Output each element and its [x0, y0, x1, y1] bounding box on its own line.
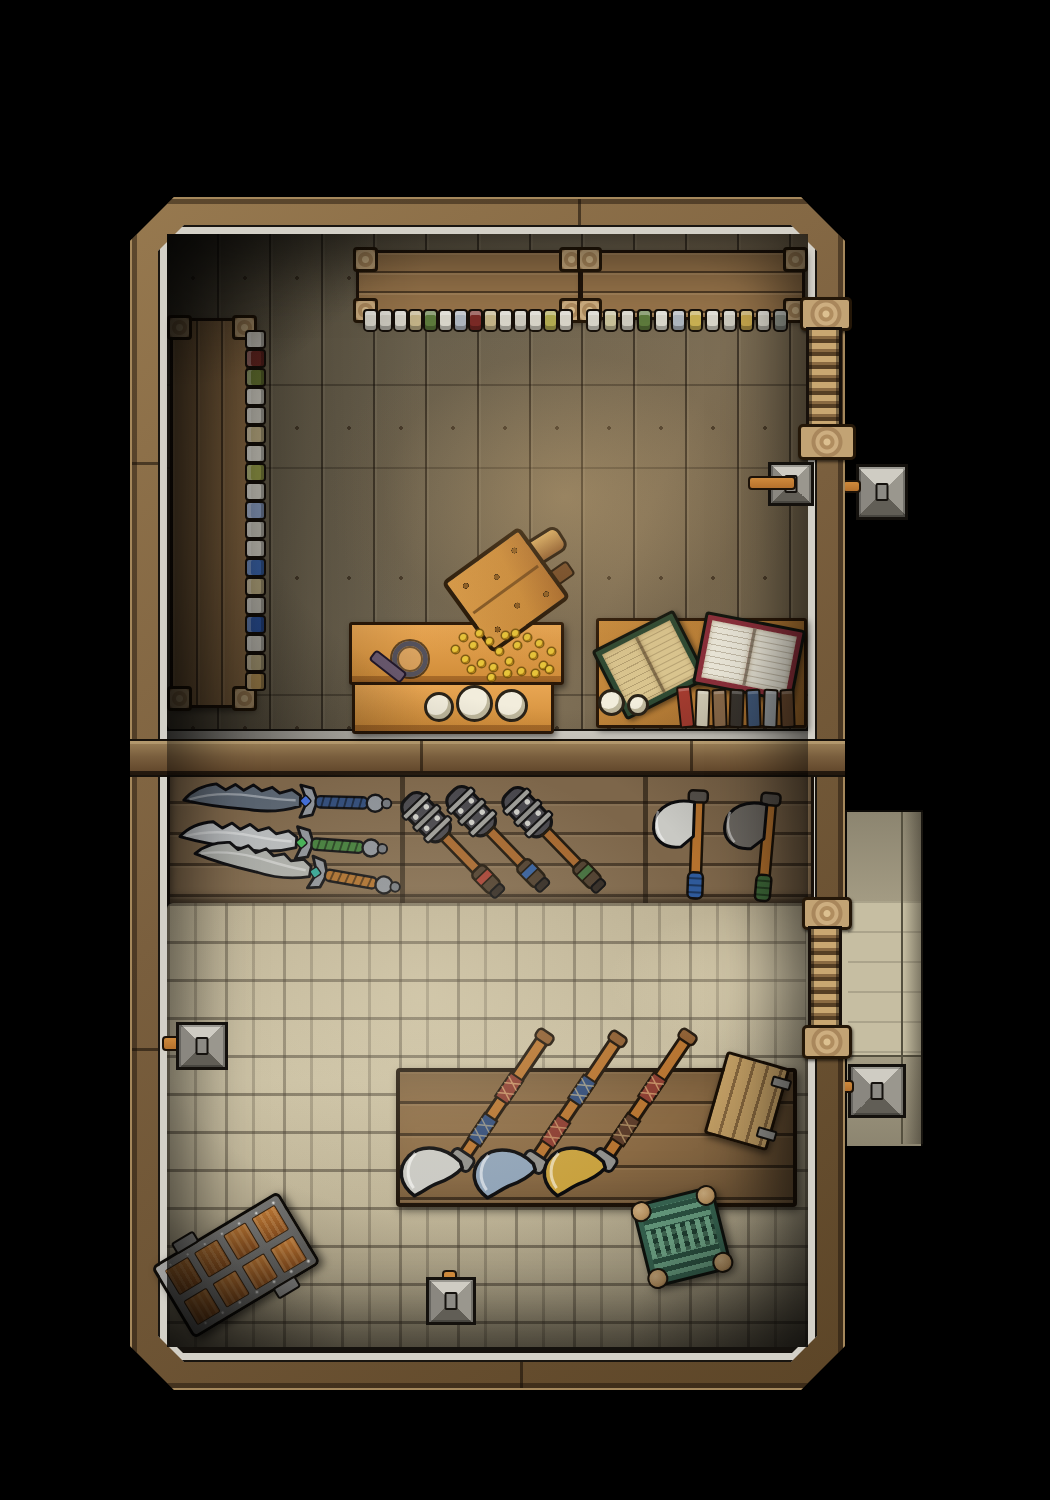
wall-seam [578, 199, 581, 226]
candle[interactable] [456, 685, 493, 722]
potion-bottle[interactable] [245, 615, 266, 634]
shelf-bracket-icon [577, 247, 602, 272]
potion-bottle[interactable] [528, 309, 543, 332]
potion-bottle[interactable] [393, 309, 408, 332]
potion-bottle[interactable] [513, 309, 528, 332]
closed-book[interactable] [762, 689, 778, 728]
potion-bottle[interactable] [363, 309, 378, 332]
potion-bottle[interactable] [245, 539, 266, 558]
potion-bottle[interactable] [245, 634, 266, 653]
potion-bottle[interactable] [705, 309, 720, 332]
gold-coin[interactable] [548, 648, 555, 655]
potion-bottle[interactable] [483, 309, 498, 332]
closed-book[interactable] [711, 689, 727, 728]
candle[interactable] [424, 692, 454, 722]
candle[interactable] [627, 694, 649, 716]
potion-bottle[interactable] [453, 309, 468, 332]
shelf-bracket-icon [783, 247, 808, 272]
candle-group [424, 686, 528, 722]
book-spine-row [678, 686, 795, 728]
potion-row-left [363, 309, 573, 332]
gold-coin[interactable] [506, 658, 513, 665]
gold-coin[interactable] [536, 640, 543, 647]
gold-coin[interactable] [468, 666, 475, 673]
potion-bottle[interactable] [773, 309, 788, 332]
potion-bottle[interactable] [620, 309, 635, 332]
gold-coin[interactable] [496, 648, 503, 655]
hand-axe-2[interactable] [713, 785, 797, 913]
potion-bottle[interactable] [245, 520, 266, 539]
side-potion-bench[interactable] [170, 318, 254, 708]
potion-bottle[interactable] [245, 444, 266, 463]
bench-bracket-icon [167, 315, 192, 340]
gold-coin[interactable] [452, 646, 459, 653]
potion-bottle[interactable] [245, 330, 266, 349]
potion-bottle[interactable] [245, 558, 266, 577]
closed-book[interactable] [728, 689, 744, 728]
battlemap-canvas [0, 0, 1050, 1500]
potion-bottle[interactable] [245, 349, 266, 368]
gold-coin[interactable] [530, 652, 537, 659]
potion-bottle[interactable] [722, 309, 737, 332]
potion-bottle[interactable] [408, 309, 423, 332]
potion-bottle[interactable] [586, 309, 601, 332]
wall-seam [132, 462, 159, 465]
hand-axe-1[interactable] [646, 785, 724, 910]
upper-door[interactable] [806, 327, 842, 430]
potion-column [245, 330, 266, 691]
potion-bottle[interactable] [245, 406, 266, 425]
closed-book[interactable] [694, 689, 710, 728]
potion-bottle[interactable] [245, 596, 266, 615]
closed-book[interactable] [779, 689, 795, 728]
potion-bottle[interactable] [468, 309, 483, 332]
potion-bottle[interactable] [245, 653, 266, 672]
potion-bottle[interactable] [245, 577, 266, 596]
potion-bottle[interactable] [245, 368, 266, 387]
potion-bottle[interactable] [756, 309, 771, 332]
left-wall-torch-icon[interactable] [176, 1022, 228, 1070]
candle[interactable] [495, 689, 528, 722]
potion-bottle[interactable] [245, 672, 266, 691]
door-post [800, 297, 852, 331]
gold-coin-pile [452, 630, 557, 676]
potion-bottle[interactable] [671, 309, 686, 332]
gold-coin[interactable] [488, 674, 495, 681]
potion-bottle[interactable] [603, 309, 618, 332]
entry-door[interactable] [808, 926, 842, 1031]
potion-bottle[interactable] [654, 309, 669, 332]
potion-bottle[interactable] [498, 309, 513, 332]
shelf-bracket-icon [353, 247, 378, 272]
gold-coin[interactable] [502, 632, 509, 639]
door-post [798, 424, 856, 460]
gold-coin[interactable] [512, 630, 519, 637]
desk-candle-group [598, 690, 649, 716]
potion-bottle[interactable] [245, 425, 266, 444]
divider-seam [690, 741, 693, 771]
candle[interactable] [598, 689, 625, 716]
gold-coin[interactable] [470, 642, 477, 649]
potion-bottle[interactable] [245, 482, 266, 501]
divider-wall [130, 739, 845, 777]
gold-coin[interactable] [490, 664, 497, 671]
gold-coin[interactable] [486, 638, 493, 645]
potion-row-right [586, 309, 788, 332]
outside-wall-lantern-icon[interactable] [856, 464, 908, 520]
closed-book[interactable] [676, 685, 695, 728]
porch-lantern-icon[interactable] [848, 1064, 906, 1118]
potion-bottle[interactable] [739, 309, 754, 332]
potion-bottle[interactable] [688, 309, 703, 332]
wall-seam [132, 1048, 159, 1051]
potion-bottle[interactable] [378, 309, 393, 332]
gold-coin[interactable] [514, 642, 521, 649]
gold-coin[interactable] [460, 634, 467, 641]
potion-bottle[interactable] [423, 309, 438, 332]
bottom-wall-torch-icon[interactable] [426, 1277, 476, 1325]
gold-coin[interactable] [478, 660, 485, 667]
gold-coin[interactable] [532, 670, 539, 677]
potion-bottle[interactable] [438, 309, 453, 332]
gold-coin[interactable] [546, 666, 553, 673]
closed-book[interactable] [745, 689, 761, 728]
book-page [742, 628, 797, 693]
bench-bracket-icon [167, 686, 192, 711]
potion-bottle[interactable] [558, 309, 573, 332]
wall-torch-handle [748, 476, 796, 490]
potion-bottle[interactable] [245, 463, 266, 482]
gold-coin[interactable] [462, 656, 469, 663]
door-post [802, 1025, 852, 1059]
gold-coin[interactable] [518, 668, 525, 675]
potion-bottle[interactable] [637, 309, 652, 332]
divider-seam [420, 741, 423, 771]
potion-bottle[interactable] [543, 309, 558, 332]
gold-coin[interactable] [476, 630, 483, 637]
potion-bottle[interactable] [245, 387, 266, 406]
gold-coin[interactable] [504, 670, 511, 677]
gold-coin[interactable] [524, 634, 531, 641]
potion-bottle[interactable] [245, 501, 266, 520]
wall-seam [520, 1361, 523, 1388]
